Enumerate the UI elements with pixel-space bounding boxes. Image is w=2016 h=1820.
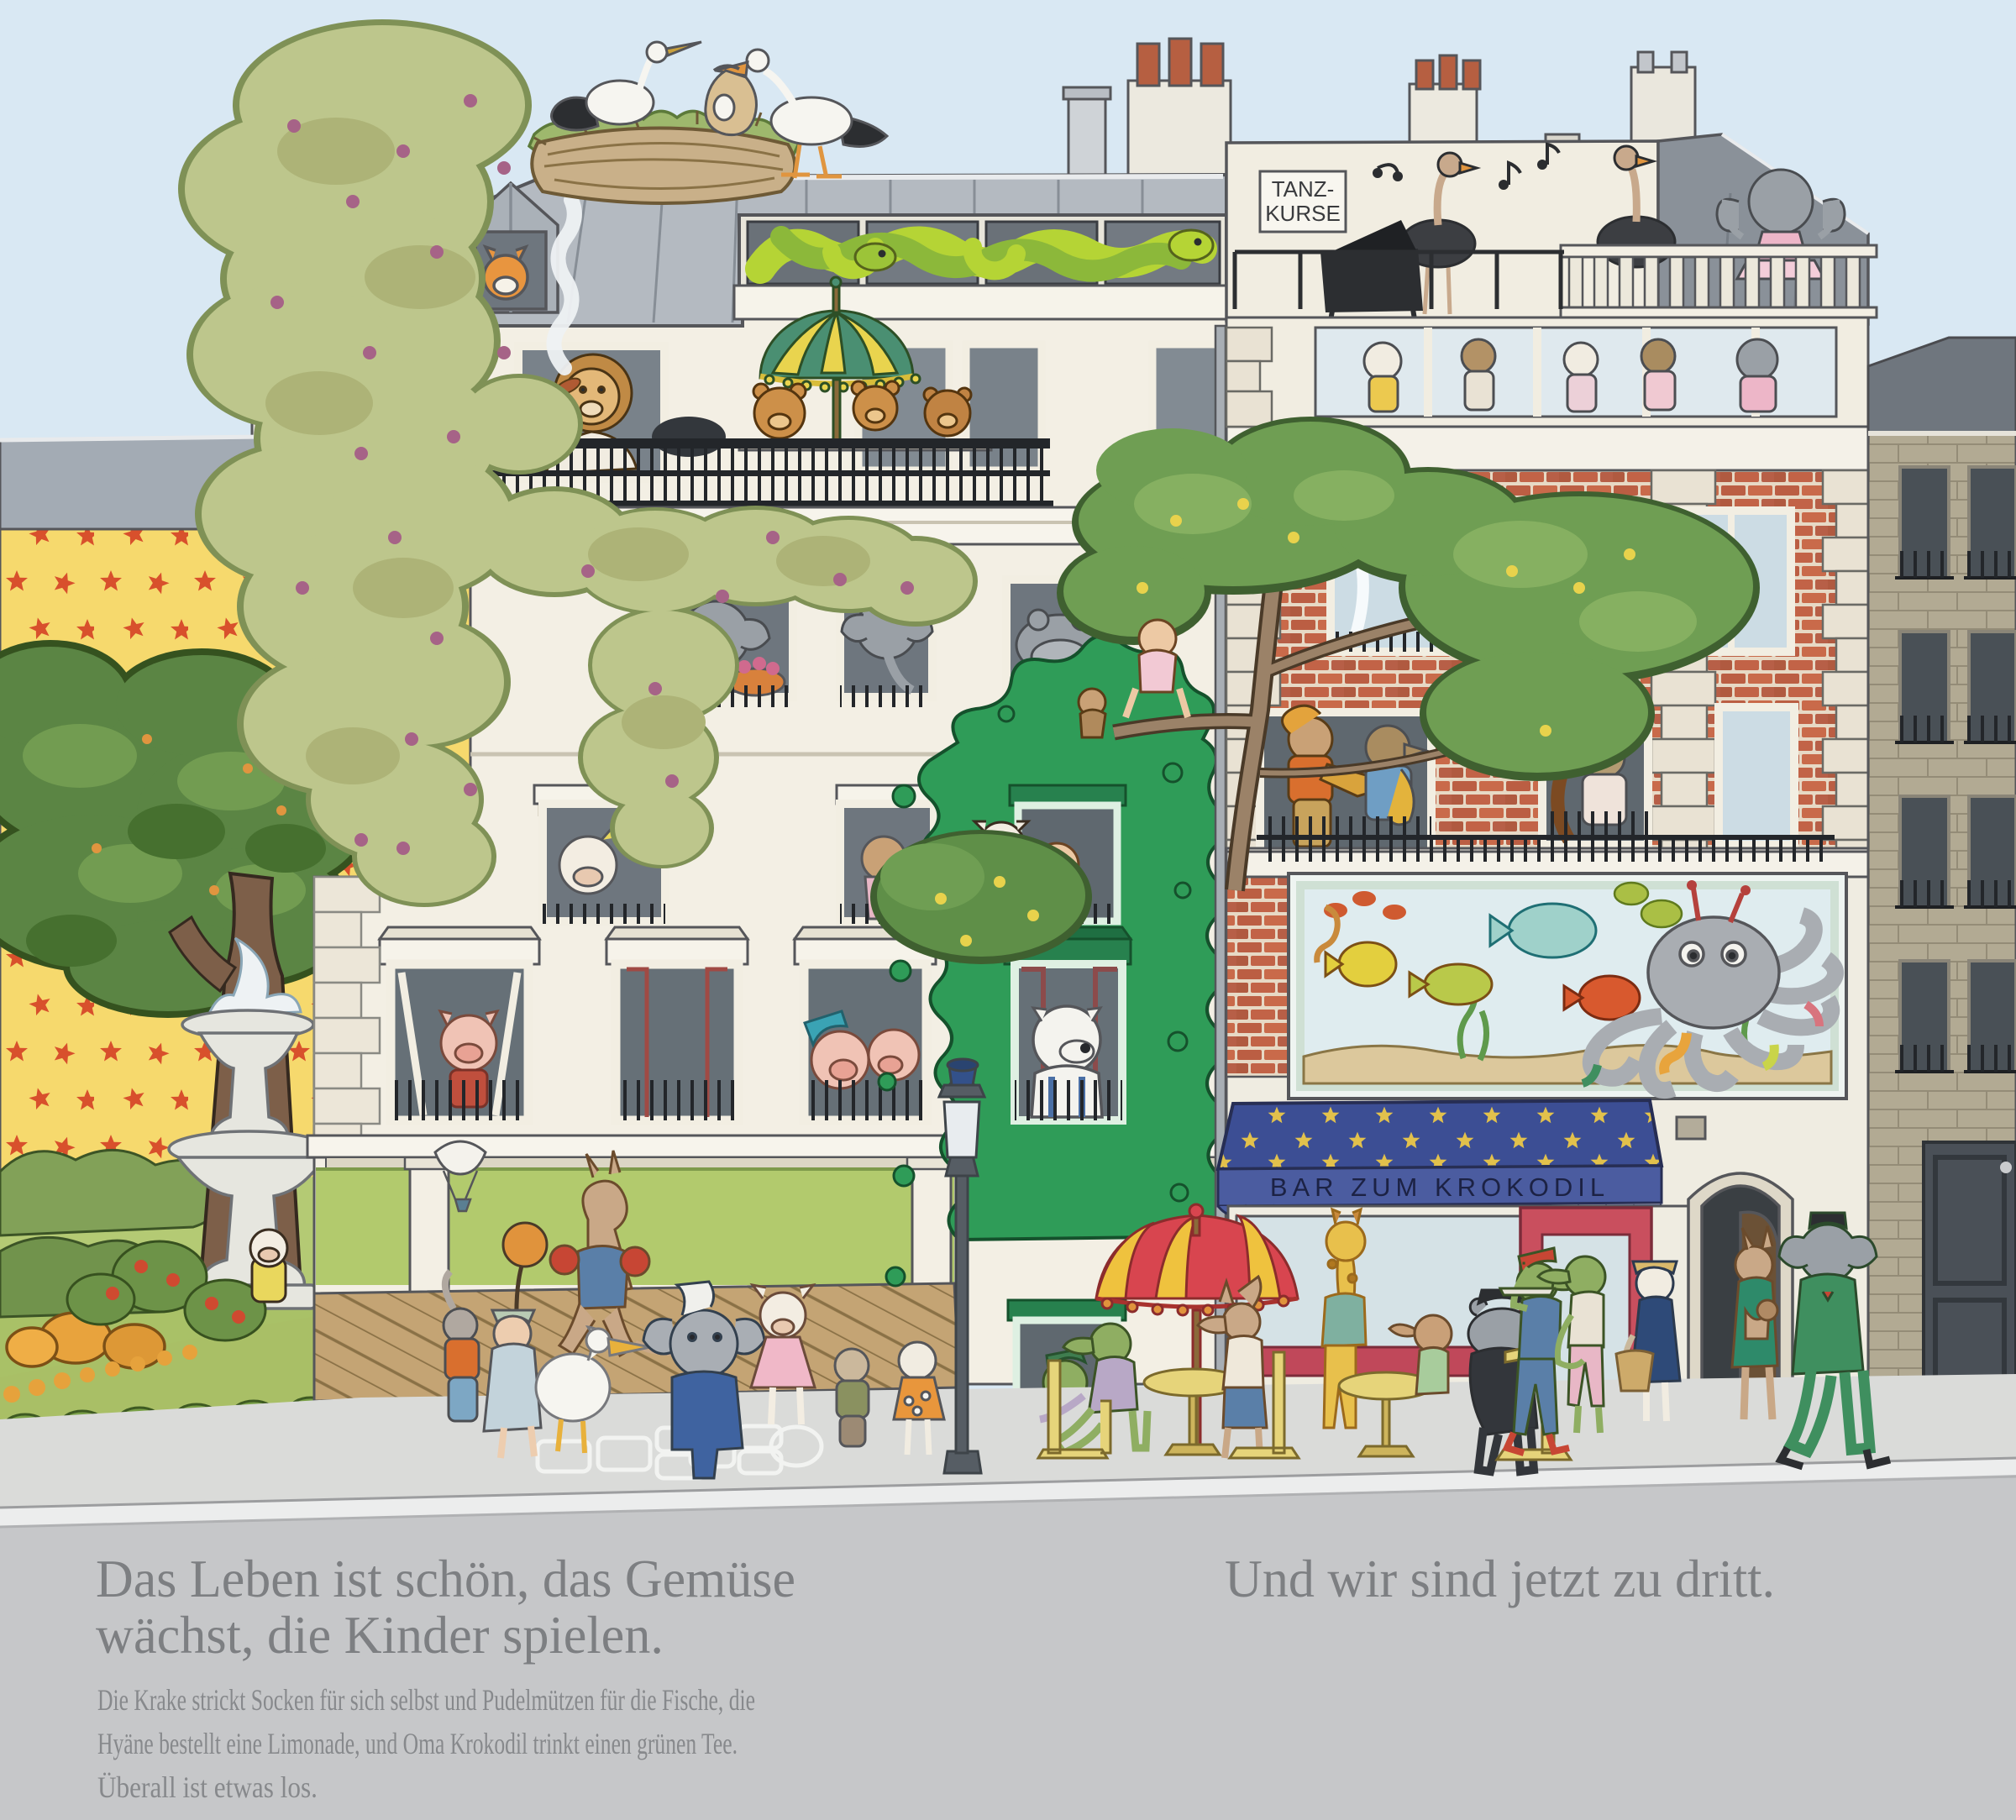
svg-text:TANZ-: TANZ- — [1272, 176, 1335, 202]
svg-text:Das Leben ist schön, das Gemüs: Das Leben ist schön, das Gemüse — [96, 1549, 795, 1608]
svg-text:KURSE: KURSE — [1265, 201, 1341, 226]
svg-text:Und wir sind jetzt zu dritt.: Und wir sind jetzt zu dritt. — [1225, 1549, 1775, 1608]
svg-text:Überall ist etwas los.: Überall ist etwas los. — [97, 1770, 318, 1804]
svg-text:wächst, die Kinder spielen.: wächst, die Kinder spielen. — [96, 1605, 664, 1665]
svg-text:Hyäne bestellt eine Limonade,: Hyäne bestellt eine Limonade, und Oma Kr… — [97, 1727, 738, 1760]
svg-text:BAR ZUM KROKODIL: BAR ZUM KROKODIL — [1270, 1172, 1609, 1202]
svg-text:Die Krake strickt Socken für s: Die Krake strickt Socken für sich selbst… — [97, 1683, 755, 1717]
